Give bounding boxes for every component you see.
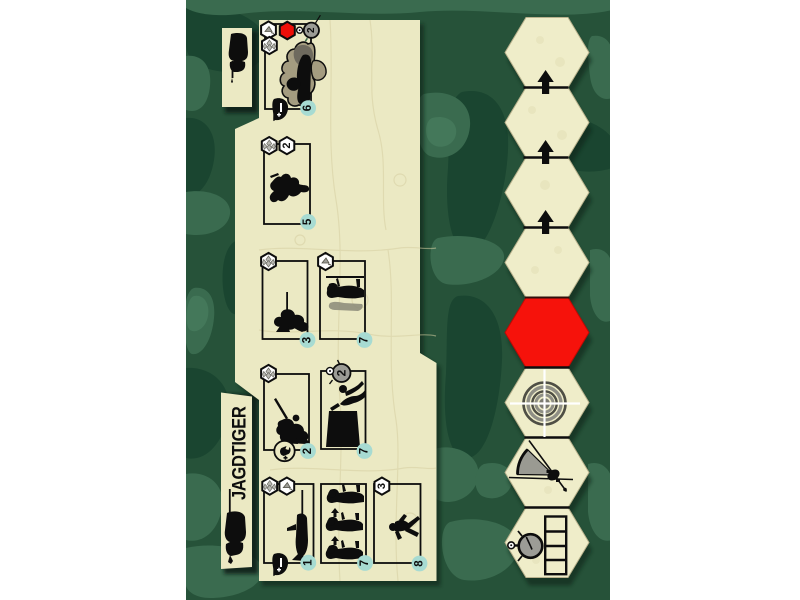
- svg-text:JAGDTIGER: JAGDTIGER: [228, 406, 250, 500]
- svg-text:8: 8: [414, 560, 426, 567]
- svg-text:1: 1: [302, 559, 314, 566]
- svg-text:6: 6: [302, 105, 314, 111]
- svg-text:7: 7: [359, 337, 371, 343]
- svg-text:5: 5: [302, 218, 314, 225]
- svg-text:2: 2: [306, 27, 317, 33]
- svg-text:2: 2: [281, 143, 293, 149]
- svg-text:2: 2: [302, 448, 314, 454]
- svg-text:7: 7: [359, 448, 371, 454]
- svg-text:3: 3: [302, 337, 314, 343]
- svg-text:3: 3: [376, 483, 388, 489]
- svg-text:2: 2: [335, 369, 349, 376]
- svg-text:7: 7: [359, 560, 371, 566]
